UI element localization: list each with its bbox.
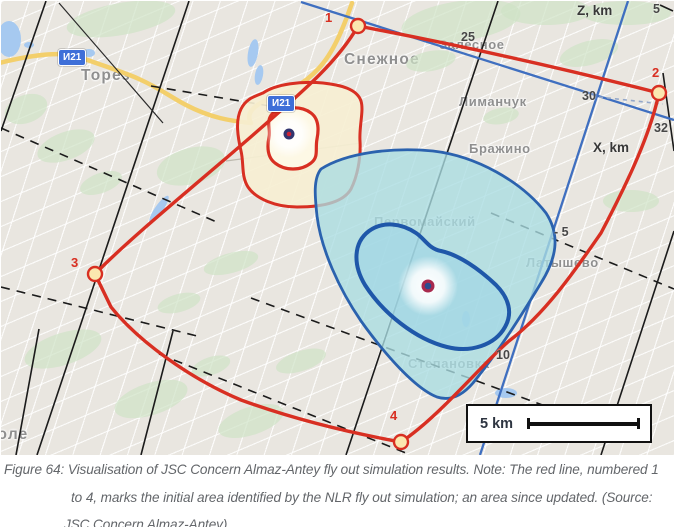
caption-line-2: to 4, marks the initial area identified … bbox=[71, 484, 682, 512]
vertex-marker-2 bbox=[652, 86, 666, 100]
impact-zone-teal bbox=[315, 150, 555, 399]
vertex-marker-3 bbox=[88, 267, 102, 281]
scale-bar-label: 5 km bbox=[480, 416, 513, 432]
map-figure: Торез Снежное Залесное Лиманчук Бражино … bbox=[1, 1, 674, 455]
caption-line-1: Figure 64: Visualisation of JSC Concern … bbox=[4, 456, 682, 484]
map-svg bbox=[1, 1, 674, 455]
vertex-marker-1 bbox=[351, 19, 365, 33]
caption-line-3: JSC Concern Almaz-Antey) bbox=[64, 511, 682, 527]
scale-bar: 5 km bbox=[466, 404, 652, 443]
figure-caption: Figure 64: Visualisation of JSC Concern … bbox=[0, 456, 682, 527]
figure-page: Торез Снежное Залесное Лиманчук Бражино … bbox=[0, 0, 682, 527]
vertex-marker-4 bbox=[394, 435, 408, 449]
scale-bar-rule bbox=[527, 422, 640, 426]
